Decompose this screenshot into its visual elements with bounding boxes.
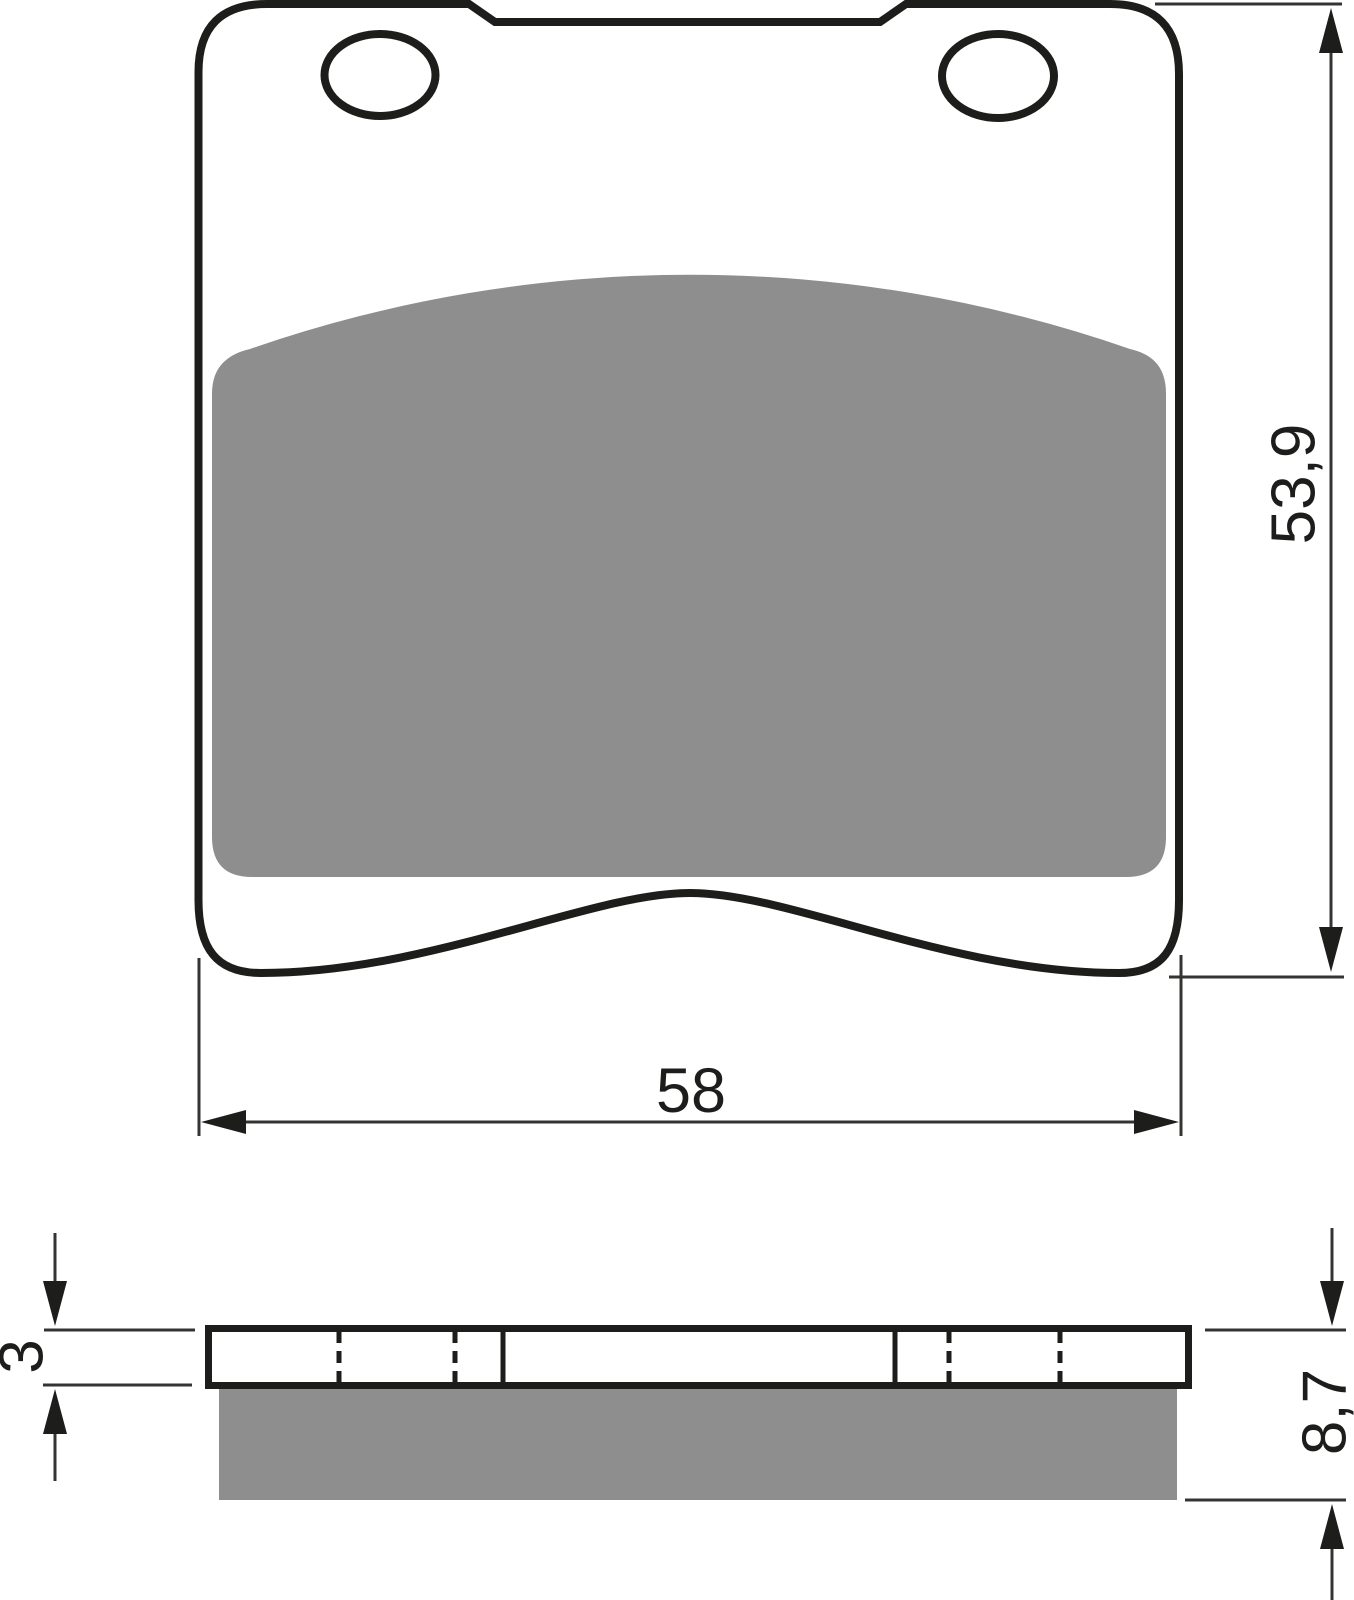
svg-text:3: 3: [0, 1339, 57, 1373]
svg-text:8,7: 8,7: [1291, 1369, 1354, 1455]
svg-text:53,9: 53,9: [1260, 424, 1329, 545]
svg-text:58: 58: [656, 1056, 726, 1126]
